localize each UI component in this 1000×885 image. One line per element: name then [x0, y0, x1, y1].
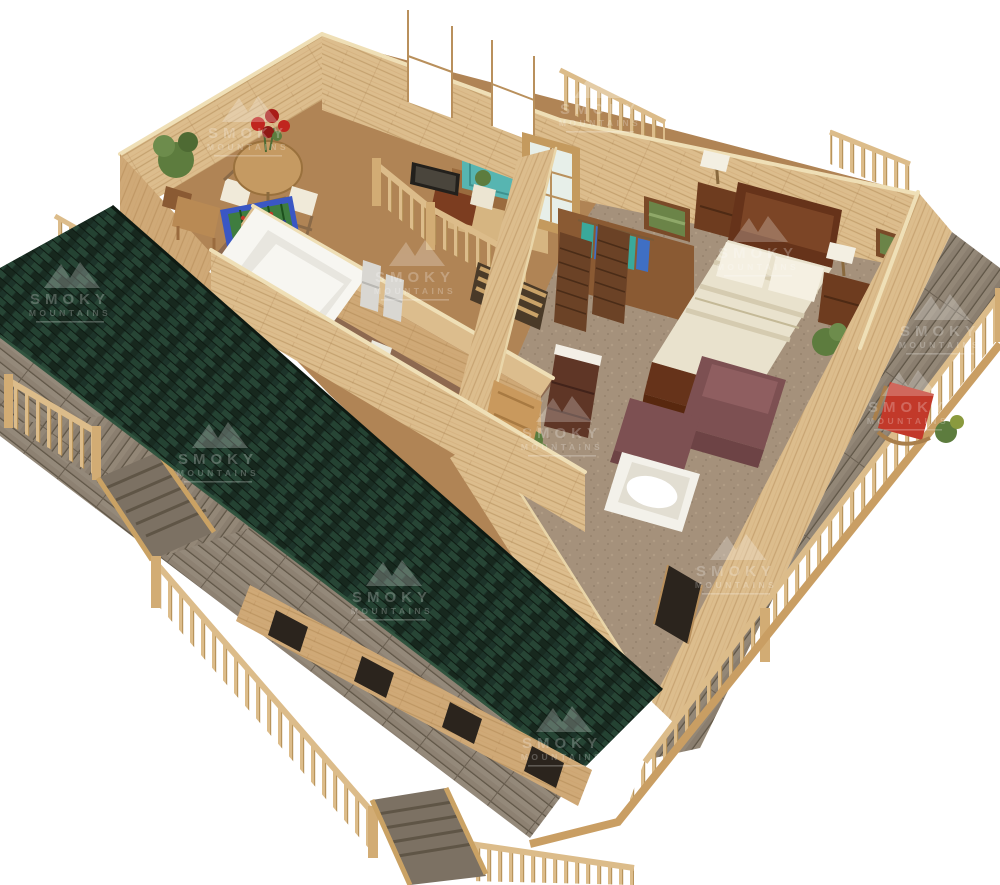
smoky-mountains-watermark: SMOKY MOUNTAINS: [7, 586, 89, 647]
svg-text:SMOKY: SMOKY: [30, 291, 110, 308]
front-stairs: [372, 788, 486, 885]
smoky-mountains-watermark: SMOKY MOUNTAINS: [861, 680, 943, 741]
floorplan-render: SMOKY MOUNTAINS: [0, 0, 1000, 885]
svg-text:MOUNTAINS: MOUNTAINS: [7, 632, 89, 642]
svg-text:SMOKY: SMOKY: [208, 125, 288, 142]
svg-text:MOUNTAINS: MOUNTAINS: [351, 606, 433, 616]
svg-text:MOUNTAINS: MOUNTAINS: [177, 468, 259, 478]
clerestory-window: [408, 10, 452, 118]
svg-text:SMOKY: SMOKY: [696, 563, 776, 580]
louvered-door: [554, 232, 592, 332]
svg-text:SMOKY: SMOKY: [868, 399, 948, 416]
svg-text:MOUNTAINS: MOUNTAINS: [29, 308, 111, 318]
svg-text:SMOKY: SMOKY: [862, 709, 942, 726]
svg-text:MOUNTAINS: MOUNTAINS: [861, 726, 943, 736]
svg-text:MOUNTAINS: MOUNTAINS: [695, 580, 777, 590]
svg-text:SMOKY: SMOKY: [522, 735, 602, 752]
mountain-logo-icon: [876, 680, 932, 706]
svg-text:MOUNTAINS: MOUNTAINS: [374, 286, 456, 296]
svg-text:MOUNTAINS: MOUNTAINS: [899, 340, 981, 350]
smoky-mountains-watermark: SMOKY MOUNTAINS: [221, 772, 303, 833]
louvered-door: [592, 224, 630, 324]
cabin-3d-floorplan: SMOKY MOUNTAINS: [0, 0, 1000, 885]
svg-text:SMOKY: SMOKY: [900, 323, 980, 340]
svg-text:SMOKY: SMOKY: [375, 269, 455, 286]
clerestory-window: [492, 40, 534, 142]
svg-text:MOUNTAINS: MOUNTAINS: [521, 442, 603, 452]
svg-text:SMOKY: SMOKY: [178, 451, 258, 468]
svg-text:SMOKY: SMOKY: [522, 425, 602, 442]
mountain-logo-icon: [22, 586, 78, 612]
deck-shrub: [950, 415, 964, 429]
svg-text:MOUNTAINS: MOUNTAINS: [521, 752, 603, 762]
mountain-logo-icon: [236, 772, 292, 798]
svg-text:MOUNTAINS: MOUNTAINS: [867, 416, 949, 426]
svg-text:MOUNTAINS: MOUNTAINS: [559, 118, 641, 128]
svg-text:MOUNTAINS: MOUNTAINS: [717, 262, 799, 272]
svg-text:SMOKY: SMOKY: [222, 801, 302, 818]
svg-text:MOUNTAINS: MOUNTAINS: [221, 818, 303, 828]
svg-text:SMOKY: SMOKY: [718, 245, 798, 262]
svg-text:SMOKY: SMOKY: [560, 101, 640, 118]
svg-text:MOUNTAINS: MOUNTAINS: [207, 142, 289, 152]
svg-text:SMOKY: SMOKY: [352, 589, 432, 606]
svg-text:SMOKY: SMOKY: [8, 615, 88, 632]
